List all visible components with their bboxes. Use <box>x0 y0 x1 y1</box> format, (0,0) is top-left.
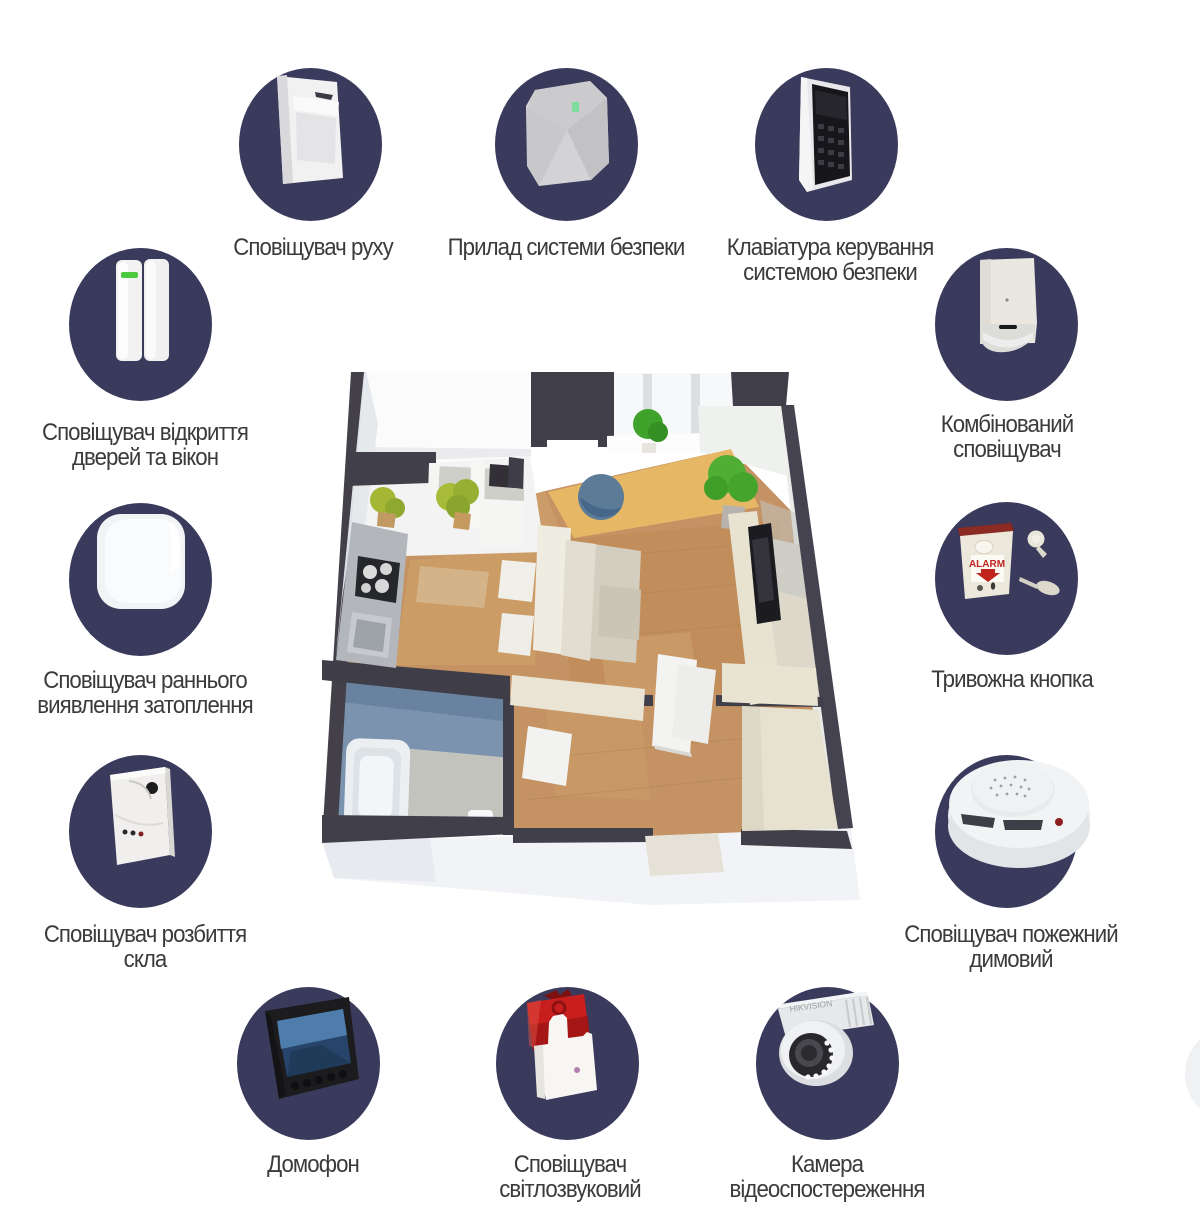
svg-text:ALARM: ALARM <box>969 559 1005 570</box>
